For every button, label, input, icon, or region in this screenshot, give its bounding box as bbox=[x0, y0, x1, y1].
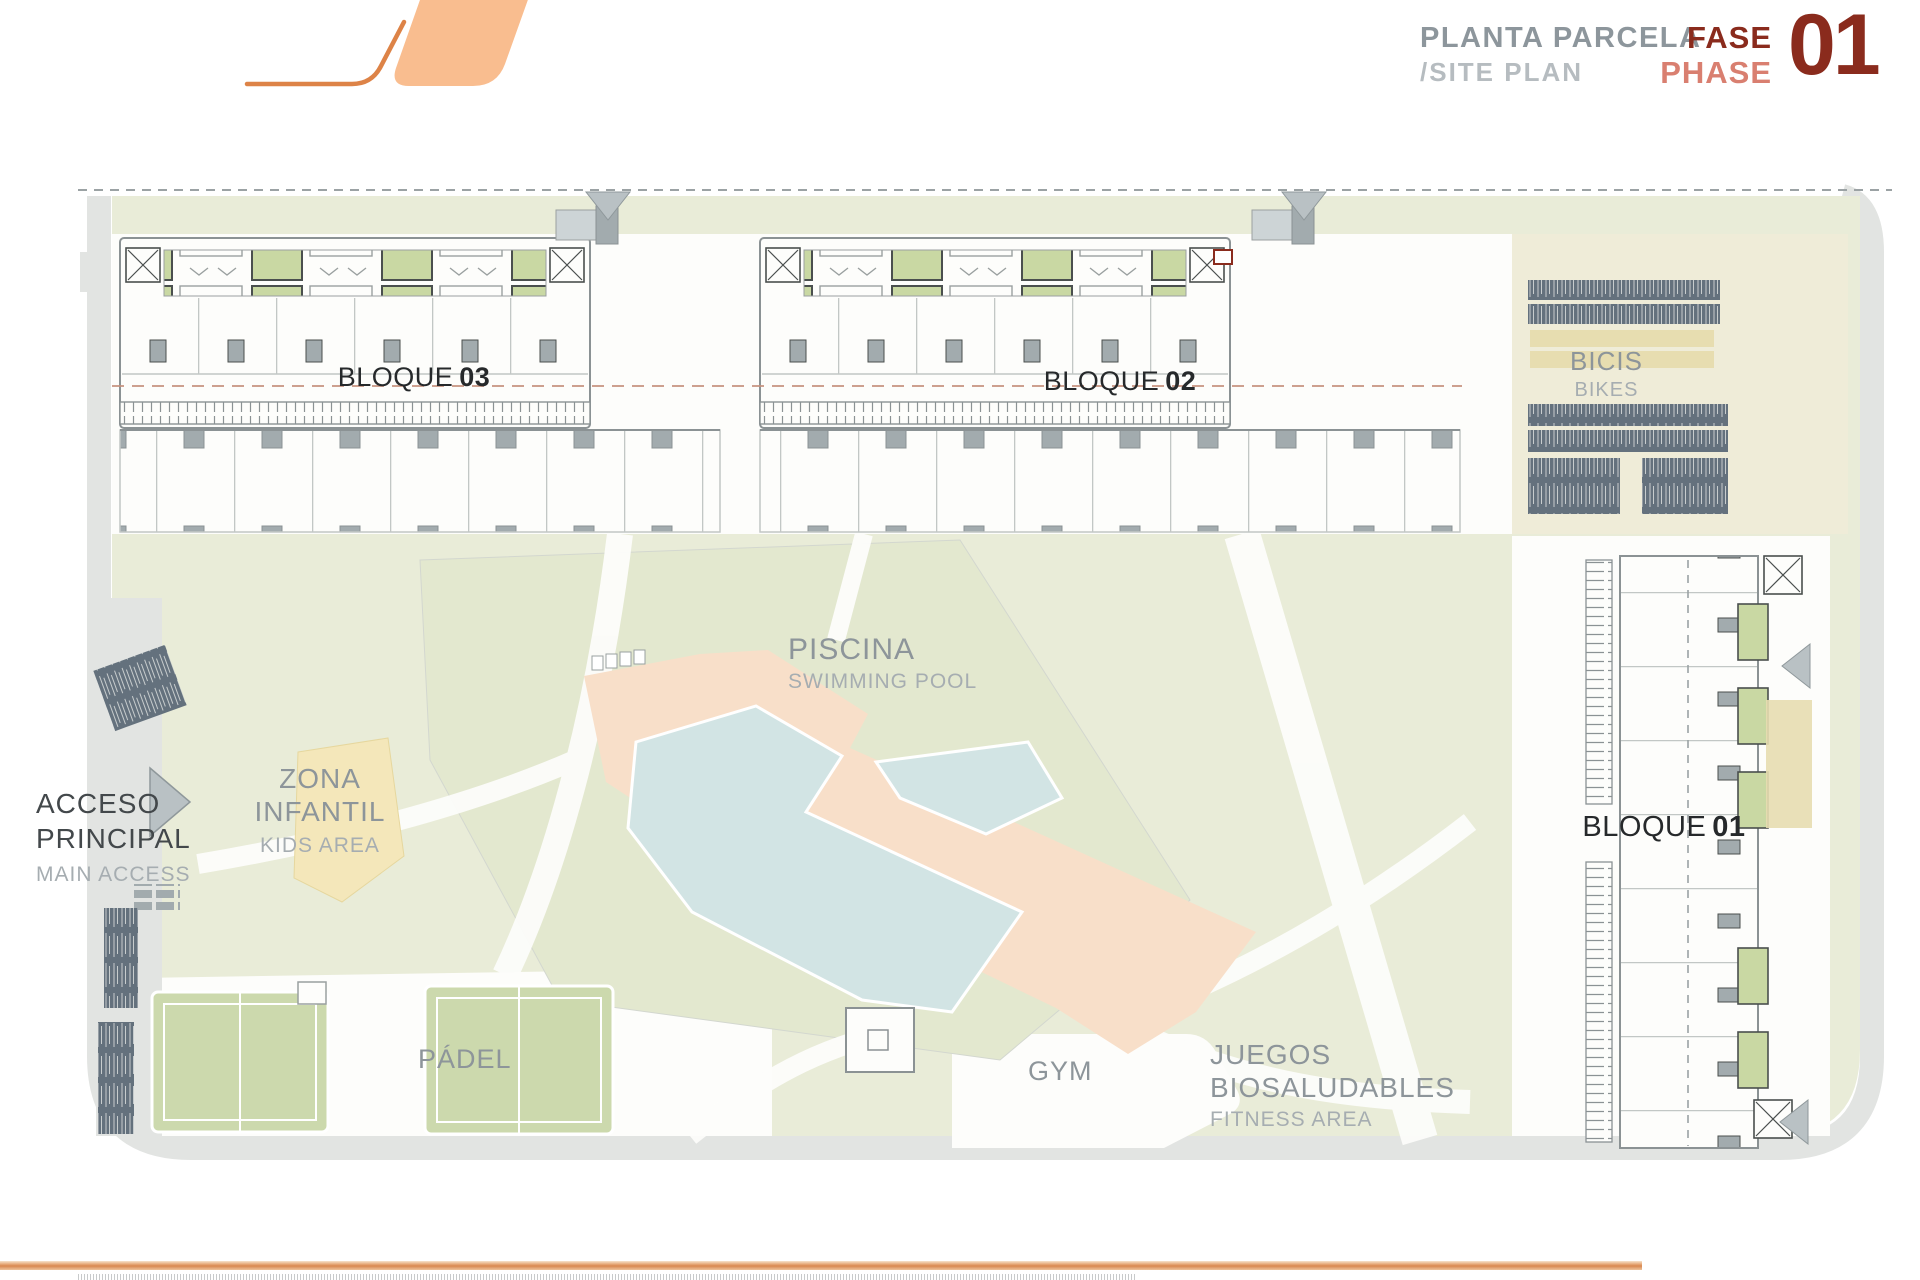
logo-parallelogram-shape bbox=[395, 0, 532, 86]
bloque-03-name: BLOQUE bbox=[338, 362, 454, 392]
phase-number: 01 bbox=[1788, 2, 1878, 88]
fase-label: FASE bbox=[1646, 20, 1772, 56]
site-plan-page: { "header": { "title_es": "PLANTA PARCEL… bbox=[0, 0, 1920, 1280]
label-kids-area: ZONA INFANTIL KIDS AREA bbox=[240, 762, 400, 859]
gym-pergola bbox=[846, 1008, 914, 1072]
label-bloque-01: BLOQUE01 bbox=[1554, 810, 1774, 844]
piscina-es: PISCINA bbox=[788, 633, 915, 666]
bloque01-sand-area bbox=[1766, 700, 1812, 828]
label-gym: GYM bbox=[1028, 1056, 1093, 1088]
juegos-line2: BIOSALUDABLES bbox=[1210, 1072, 1455, 1103]
piscina-en: SWIMMING POOL bbox=[788, 670, 977, 695]
zona-line2: INFANTIL bbox=[255, 796, 386, 827]
footer-orange-rule bbox=[0, 1261, 1642, 1270]
phase-label: PHASE bbox=[1616, 55, 1772, 91]
bloque-01-name: BLOQUE bbox=[1582, 811, 1706, 843]
label-bikes: BICIS BIKES bbox=[1570, 346, 1643, 402]
label-main-access: ACCESO PRINCIPAL MAIN ACCESS bbox=[36, 786, 191, 888]
zona-line1: ZONA bbox=[279, 763, 361, 794]
label-bloque-03: BLOQUE03 bbox=[298, 362, 530, 394]
bloque-03-number: 03 bbox=[459, 362, 490, 392]
label-padel: PÁDEL bbox=[418, 1044, 512, 1076]
bloque-02-number: 02 bbox=[1165, 366, 1196, 396]
bicis-es: BICIS bbox=[1570, 346, 1643, 376]
zona-en: KIDS AREA bbox=[240, 834, 400, 859]
juegos-line1: JUEGOS bbox=[1210, 1039, 1331, 1070]
bloque-01-number: 01 bbox=[1712, 811, 1745, 843]
padel-es: PÁDEL bbox=[418, 1044, 512, 1074]
label-fitness-area: JUEGOS BIOSALUDABLES FITNESS AREA bbox=[1210, 1038, 1455, 1133]
bloque-02-name: BLOQUE bbox=[1044, 366, 1160, 396]
plan-title-english: /SITE PLAN bbox=[1420, 57, 1583, 88]
plan-marker bbox=[1214, 250, 1232, 264]
acceso-line1: ACCESO bbox=[36, 788, 160, 819]
logo-swoosh-line bbox=[247, 22, 404, 84]
gym-es: GYM bbox=[1028, 1056, 1093, 1086]
bicis-en: BIKES bbox=[1570, 379, 1643, 403]
label-swimming-pool: PISCINA SWIMMING POOL bbox=[788, 632, 977, 695]
acceso-en: MAIN ACCESS bbox=[36, 862, 191, 888]
company-logo bbox=[247, 0, 532, 86]
acceso-line2: PRINCIPAL bbox=[36, 823, 191, 854]
footer-truncated-microtext bbox=[78, 1274, 1136, 1280]
juegos-en: FITNESS AREA bbox=[1210, 1108, 1455, 1133]
label-bloque-02: BLOQUE02 bbox=[1004, 366, 1236, 398]
